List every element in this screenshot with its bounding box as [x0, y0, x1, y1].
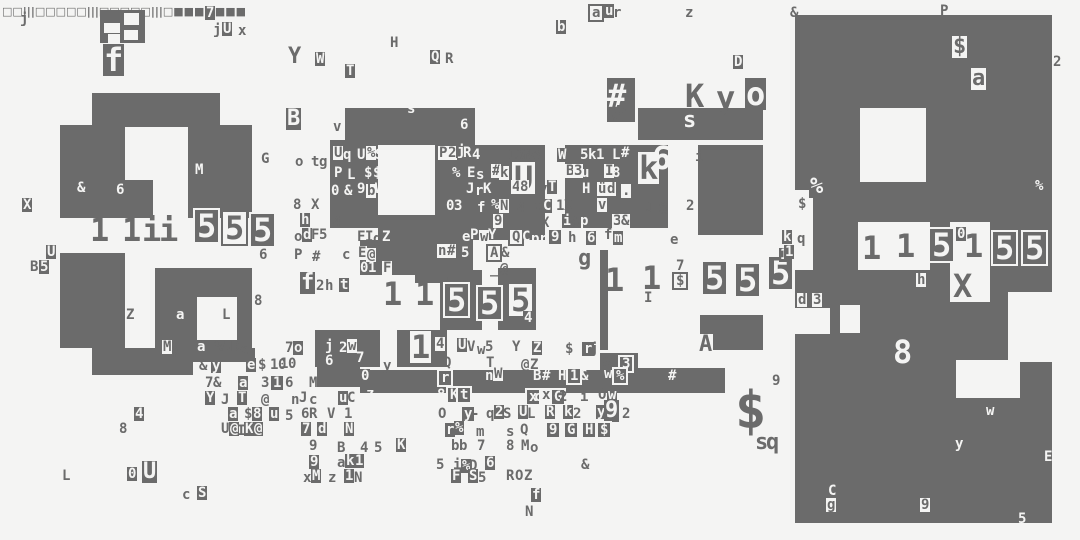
- glitch-glyph: t: [456, 386, 472, 404]
- glitch-glyph: V: [467, 340, 475, 354]
- glitch-glyph: 6: [116, 183, 124, 197]
- glitch-glyph: D: [733, 55, 743, 69]
- glitch-glyph: B: [286, 108, 301, 130]
- glitch-glyph: 2: [1053, 55, 1061, 69]
- glitch-glyph: 5: [734, 262, 761, 298]
- glitch-glyph: &: [344, 184, 352, 198]
- glitch-glyph: 1: [596, 148, 604, 162]
- glitch-glyph: $: [596, 421, 612, 439]
- glitch-glyph: X: [564, 199, 572, 213]
- glitch-glyph: d: [317, 422, 327, 436]
- glitch-glyph: P: [470, 228, 478, 242]
- glitch-glyph: $: [565, 342, 573, 356]
- blob-block: [60, 253, 125, 348]
- glitch-glyph: s: [683, 110, 696, 132]
- glitch-glyph: 8: [506, 439, 514, 453]
- glitch-glyph: X: [22, 198, 32, 212]
- glitch-glyph: 1: [784, 245, 794, 259]
- glitch-glyph: e: [670, 233, 678, 247]
- glitch-glyph: C: [542, 199, 552, 213]
- glitch-glyph: W: [375, 182, 383, 196]
- glitch-glyph: U: [333, 146, 343, 160]
- glitch-glyph: 8: [437, 388, 445, 402]
- glitch-glyph: v: [597, 198, 607, 212]
- glitch-glyph: %: [1035, 179, 1043, 193]
- glitch-glyph: i: [159, 214, 178, 246]
- glitch-glyph: M: [311, 469, 321, 483]
- glitch-glyph: a: [175, 308, 185, 322]
- blob-hole: [860, 108, 926, 182]
- glitch-glyph: 8: [293, 198, 301, 212]
- glitch-glyph: 5: [249, 212, 276, 248]
- blob-hole: [197, 297, 237, 340]
- glitch-glyph: 1: [122, 214, 141, 246]
- glitch-glyph: 5: [485, 340, 493, 354]
- glitch-glyph: @: [521, 358, 529, 372]
- glitch-glyph: &: [620, 214, 630, 228]
- glitch-glyph: 6: [285, 376, 293, 390]
- glitch-glyph: H: [582, 182, 590, 196]
- glitch-glyph: 9: [772, 374, 780, 388]
- glitch-glyph: 5: [285, 409, 293, 423]
- glitch-glyph: 9: [493, 214, 503, 228]
- glitch-glyph: O: [515, 469, 523, 483]
- glitch-glyph: f: [603, 228, 613, 242]
- glitch-glyph: Z: [381, 230, 391, 244]
- glitch-glyph: 1: [344, 407, 352, 421]
- glitch-glyph: 8: [893, 336, 912, 368]
- glitch-glyph: &: [581, 458, 589, 472]
- glitch-glyph: j: [213, 23, 221, 37]
- glitch-glyph: &: [473, 246, 481, 260]
- glitch-glyph: 7: [205, 6, 215, 20]
- blob-block: [638, 368, 725, 393]
- glitch-glyph: 5: [476, 285, 503, 321]
- blob-hole: [840, 305, 860, 333]
- glitch-glyph: Z: [126, 308, 134, 322]
- blob-block: [317, 360, 360, 387]
- glitch-glyph: U: [357, 148, 365, 162]
- glitch-glyph: 1: [896, 230, 915, 262]
- glitch-glyph: #: [621, 146, 629, 160]
- glitch-glyph: i: [580, 390, 588, 404]
- glitch-glyph: M: [521, 439, 529, 453]
- glitch-glyph: %: [612, 367, 628, 385]
- glitch-glyph: k: [782, 230, 792, 244]
- glitch-glyph: 7: [356, 351, 364, 365]
- glitch-glyph: x: [238, 24, 246, 38]
- glitch-glyph: 5: [461, 246, 469, 260]
- glitch-glyph: @: [500, 262, 508, 276]
- glitch-glyph: 1: [90, 214, 109, 246]
- glitch-glyph: 4: [472, 148, 480, 162]
- glitch-glyph: A: [698, 334, 713, 356]
- glitch-glyph: q: [766, 432, 779, 454]
- glitch-glyph: &: [77, 181, 85, 195]
- glitch-glyph: P: [294, 248, 302, 262]
- glitch-glyph: L: [222, 308, 230, 322]
- glitch-glyph: 5: [1018, 512, 1026, 526]
- glitch-glyph: c: [182, 488, 190, 502]
- glitch-glyph: g: [578, 248, 591, 270]
- glitch-glyph: 4: [134, 407, 144, 421]
- glitch-glyph: i: [695, 150, 703, 164]
- glitch-glyph: T: [345, 64, 355, 78]
- glitch-glyph: 9: [545, 421, 561, 439]
- glitch-glyph: Q: [430, 50, 440, 64]
- glitch-glyph: B: [533, 369, 541, 383]
- glitch-glyph: o: [530, 441, 538, 455]
- glitch-glyph: H: [390, 36, 398, 50]
- glitch-glyph: R: [445, 52, 453, 66]
- glitch-glyph: E: [467, 166, 475, 180]
- glitch-glyph: p: [172, 343, 180, 357]
- glitch-glyph: 1: [269, 374, 285, 392]
- glitch-glyph: C: [347, 391, 355, 405]
- glitch-glyph: 4: [333, 215, 341, 229]
- glitch-glyph: f: [531, 488, 541, 502]
- glitch-glyph: @: [253, 422, 263, 436]
- glitch-glyph: &: [199, 359, 207, 373]
- glitch-glyph: 6: [325, 354, 333, 368]
- glitch-glyph: r: [613, 6, 621, 20]
- glitch-glyph: b: [459, 439, 467, 453]
- glitch-glyph: W: [557, 148, 567, 162]
- glitch-glyph: #: [668, 369, 676, 383]
- glitch-glyph: U: [46, 245, 56, 259]
- glitch-glyph: f: [477, 201, 485, 215]
- glitch-glyph: 9: [604, 400, 619, 422]
- glitch-glyph: M: [162, 340, 172, 354]
- glitch-glyph: E: [1044, 450, 1052, 464]
- glitch-glyph: 4: [517, 201, 525, 215]
- glitch-glyph: d: [797, 293, 807, 307]
- glitch-glyph: &: [790, 6, 798, 20]
- glitch-glyph: v: [333, 120, 341, 134]
- glitch-glyph: 1: [383, 278, 402, 310]
- glitch-glyph: S: [375, 148, 383, 162]
- glitch-glyph: h: [300, 213, 310, 227]
- glitch-glyph: m: [613, 231, 623, 245]
- glitch-glyph: A: [486, 244, 502, 262]
- glitch-glyph: p: [579, 214, 589, 228]
- glitch-glyph: L: [62, 469, 70, 483]
- glitch-glyph: U: [222, 22, 232, 36]
- blob-hole: [795, 308, 830, 334]
- glitch-glyph: .: [621, 184, 631, 198]
- glitch-glyph: W: [493, 367, 503, 381]
- glitch-glyph: $: [364, 166, 372, 180]
- glitch-glyph: 2: [316, 279, 324, 293]
- glitch-glyph: 5: [1021, 230, 1048, 266]
- glitch-glyph: 8: [612, 166, 620, 180]
- glitch-glyph: w: [986, 404, 994, 418]
- glitch-glyph: J: [221, 393, 229, 407]
- glitch-glyph: q: [797, 232, 805, 246]
- glitch-glyph: g: [319, 155, 327, 169]
- glitch-glyph: a: [971, 68, 986, 90]
- glitch-glyph: y: [955, 437, 963, 451]
- glitch-glyph: F: [382, 261, 392, 275]
- glitch-glyph: Y: [512, 340, 520, 354]
- glitch-glyph: $: [672, 272, 688, 290]
- glitch-glyph: e: [246, 358, 256, 372]
- glitch-glyph: y: [211, 359, 221, 373]
- glitch-glyph: N: [344, 422, 354, 436]
- glitch-glyph: h: [325, 279, 333, 293]
- glitch-glyph: b: [556, 20, 566, 34]
- glitch-glyph: 5: [39, 260, 49, 274]
- glitch-glyph: 5: [928, 227, 955, 263]
- glitch-glyph: 2: [622, 407, 630, 421]
- glitch-glyph: q: [343, 148, 351, 162]
- glitch-glyph: U: [142, 461, 157, 483]
- glitch-glyph: S: [468, 469, 478, 483]
- glitch-glyph: 9: [357, 182, 365, 196]
- glitch-glyph: 1: [862, 232, 881, 264]
- window-pane: [124, 30, 138, 40]
- window-icon: [100, 10, 145, 43]
- glitch-glyph: y: [716, 82, 735, 114]
- glitch-glyph: N: [354, 471, 362, 485]
- glitch-glyph: s: [476, 168, 484, 182]
- glitch-glyph: O: [438, 407, 446, 421]
- glitch-glyph: F: [451, 469, 461, 483]
- glitch-glyph: 0: [278, 358, 286, 372]
- glitch-glyph: 8: [519, 180, 529, 194]
- window-pane: [124, 13, 139, 25]
- glitch-glyph: Y: [288, 46, 301, 68]
- glitch-glyph: N: [499, 199, 509, 213]
- glitch-glyph: j: [325, 339, 333, 353]
- glitch-glyph: R: [463, 146, 471, 160]
- glitch-glyph: S: [197, 486, 207, 500]
- glitch-glyph: 1: [368, 261, 376, 275]
- glitch-glyph: 6: [586, 231, 596, 245]
- glitch-glyph: %: [454, 421, 464, 435]
- glitch-glyph: a: [238, 376, 248, 390]
- glitch-glyph: $: [258, 358, 266, 372]
- glitch-glyph: o: [745, 78, 766, 110]
- glitch-glyph: f: [300, 272, 315, 294]
- glitch-glyph: a: [588, 4, 604, 22]
- glitch-glyph: g: [826, 498, 836, 512]
- glitch-glyph: 3: [980, 387, 988, 401]
- glitch-glyph: 1: [964, 230, 983, 262]
- glitch-glyph: Q: [520, 423, 528, 437]
- glitch-glyph: B: [337, 441, 345, 455]
- glitch-glyph: L: [527, 407, 535, 421]
- glitch-glyph: 5: [443, 282, 470, 318]
- glitch-glyph: R: [506, 469, 514, 483]
- blob-block: [60, 125, 125, 180]
- glitch-glyph: Z: [532, 341, 542, 355]
- glitch-glyph: r: [437, 369, 453, 387]
- glitch-glyph: Y: [488, 228, 496, 242]
- glitch-glyph: 7: [477, 439, 485, 453]
- glitch-glyph: B: [30, 260, 38, 274]
- glitch-glyph: 7: [301, 422, 311, 436]
- glitch-glyph: Z: [524, 469, 532, 483]
- blob-block: [92, 360, 193, 375]
- glitch-glyph: 6: [259, 248, 267, 262]
- glitch-glyph: 5: [193, 208, 220, 244]
- glitch-glyph: X: [311, 198, 319, 212]
- glitch-glyph: 5: [374, 441, 382, 455]
- glitch-glyph: L: [347, 168, 355, 182]
- glitch-glyph: c: [342, 248, 350, 262]
- glitch-glyph: k: [499, 166, 509, 180]
- glitch-glyph: 4: [435, 337, 445, 351]
- glitch-glyph: @: [659, 201, 667, 215]
- glitch-glyph: 2: [559, 390, 567, 404]
- glitch-glyph: 1: [410, 331, 431, 363]
- glitch-glyph: -: [471, 407, 479, 421]
- glitch-glyph: z: [366, 387, 374, 401]
- glitch-glyph: G: [563, 421, 579, 439]
- glitch-glyph: X: [953, 270, 972, 302]
- window-pane: [104, 23, 120, 33]
- glitch-glyph: c: [309, 393, 317, 407]
- glitch-glyph: P: [940, 4, 948, 18]
- glitch-glyph: 3: [454, 199, 462, 213]
- glitch-glyph: d: [606, 182, 616, 196]
- glitch-glyph: T: [237, 391, 247, 405]
- glitch-glyph: $: [952, 36, 967, 58]
- glitch-glyph: S: [503, 407, 511, 421]
- glitch-glyph: &: [570, 216, 578, 230]
- blob-hole: [1008, 292, 1052, 362]
- glitch-glyph: Q: [443, 356, 451, 370]
- glitch-glyph: 6: [485, 456, 495, 470]
- glitch-glyph: L: [612, 148, 620, 162]
- glitch-glyph: M: [195, 163, 203, 177]
- glitch-glyph: u: [269, 407, 279, 421]
- glitch-glyph: 1: [354, 454, 364, 468]
- glitch-glyph: k: [638, 152, 659, 184]
- glitch-glyph: 9: [920, 498, 930, 512]
- glitch-glyph: $: [373, 166, 381, 180]
- glitch-glyph: V: [327, 407, 335, 421]
- blob-block: [698, 145, 763, 235]
- glitch-glyph: &: [213, 376, 221, 390]
- glitch-glyph: j: [590, 342, 598, 356]
- glitch-glyph: 5: [478, 471, 486, 485]
- glitch-glyph: 2: [573, 407, 581, 421]
- glitch-glyph: G: [261, 152, 269, 166]
- glitch-glyph: 5: [991, 230, 1018, 266]
- glitch-glyph: h: [568, 231, 576, 245]
- glitch-glyph: 5: [436, 458, 444, 472]
- glitch-glyph: J: [646, 201, 654, 215]
- glitch-glyph: J: [466, 182, 474, 196]
- glitch-glyph: 0: [331, 184, 339, 198]
- glitch-glyph: f: [103, 44, 124, 76]
- glitch-glyph: M: [309, 376, 317, 390]
- glitch-glyph: 1: [415, 278, 434, 310]
- glitch-glyph: K: [483, 182, 491, 196]
- glitch-glyph: 9: [309, 455, 319, 469]
- glitch-glyph: 5: [701, 260, 728, 296]
- glitch-glyph: P: [334, 166, 342, 180]
- glitch-glyph: N: [525, 505, 533, 519]
- glitch-glyph: s: [407, 102, 415, 116]
- glitch-glyph: 1: [605, 264, 624, 296]
- glitch-glyph: 8: [254, 294, 262, 308]
- glitch-glyph: #: [542, 369, 550, 383]
- glitch-glyph: %: [809, 176, 824, 198]
- glitch-glyph: 6: [460, 118, 468, 132]
- glitch-glyph: 1: [344, 469, 354, 483]
- glitch-glyph: #: [612, 104, 625, 126]
- glitch-glyph: 0: [360, 369, 370, 383]
- glitch-glyph: m: [476, 425, 484, 439]
- glitch-glyph: U: [457, 338, 467, 352]
- glitch-glyph: I: [644, 291, 652, 305]
- glitch-glyph: T: [547, 180, 557, 194]
- glitch-glyph: H: [581, 421, 597, 439]
- glitch-glyph: &: [501, 246, 509, 260]
- glitch-canvas: □□|||□□□□□|||□□□□□|||□■■■□■■■ j7jUxbaurz…: [0, 0, 1080, 540]
- glitch-glyph: 2: [686, 199, 694, 213]
- glitch-glyph: o: [295, 155, 303, 169]
- glitch-glyph: W: [315, 52, 325, 66]
- glitch-glyph: R: [545, 405, 555, 419]
- glitch-glyph: A: [222, 340, 230, 354]
- glitch-glyph: j: [20, 12, 28, 26]
- glitch-glyph: C: [522, 230, 530, 244]
- glitch-glyph: s: [506, 425, 514, 439]
- glitch-glyph: 3: [812, 293, 822, 307]
- glitch-glyph: 8: [252, 407, 262, 421]
- glitch-glyph: a: [196, 340, 206, 354]
- glitch-glyph: u: [581, 166, 589, 180]
- glitch-glyph: C: [828, 484, 836, 498]
- glitch-glyph: a: [228, 407, 238, 421]
- glitch-glyph: 5: [221, 210, 248, 246]
- glitch-glyph: o: [293, 341, 303, 355]
- glitch-glyph: _: [490, 262, 498, 276]
- glitch-glyph: &: [580, 369, 588, 383]
- glitch-glyph: y: [383, 359, 391, 373]
- glitch-glyph: @: [261, 393, 269, 407]
- glitch-glyph: %: [452, 166, 460, 180]
- glitch-glyph: 9: [309, 439, 317, 453]
- glitch-glyph: R: [309, 407, 317, 421]
- glitch-glyph: t: [339, 278, 349, 292]
- glitch-glyph: e: [240, 343, 248, 357]
- glitch-glyph: 9: [547, 228, 563, 246]
- glitch-glyph: 0: [288, 357, 296, 371]
- glitch-glyph: k: [563, 405, 573, 419]
- glitch-glyph: D: [231, 340, 239, 354]
- glitch-glyph: K: [396, 438, 406, 452]
- glitch-glyph: Y: [205, 391, 215, 405]
- glitch-glyph: 7: [676, 259, 684, 273]
- glitch-glyph: 4: [523, 311, 533, 325]
- glitch-glyph: 0: [127, 467, 137, 481]
- glitch-glyph: #: [312, 250, 320, 264]
- glitch-glyph: #: [446, 244, 456, 258]
- glitch-glyph: h: [916, 273, 926, 287]
- glitch-glyph: 5: [319, 228, 327, 242]
- blob-block: [92, 93, 220, 127]
- glitch-glyph: z: [328, 471, 336, 485]
- glitch-glyph: 8: [119, 422, 127, 436]
- glitch-glyph: $: [798, 197, 806, 211]
- glitch-glyph: z: [685, 6, 693, 20]
- glitch-glyph: J: [299, 391, 307, 405]
